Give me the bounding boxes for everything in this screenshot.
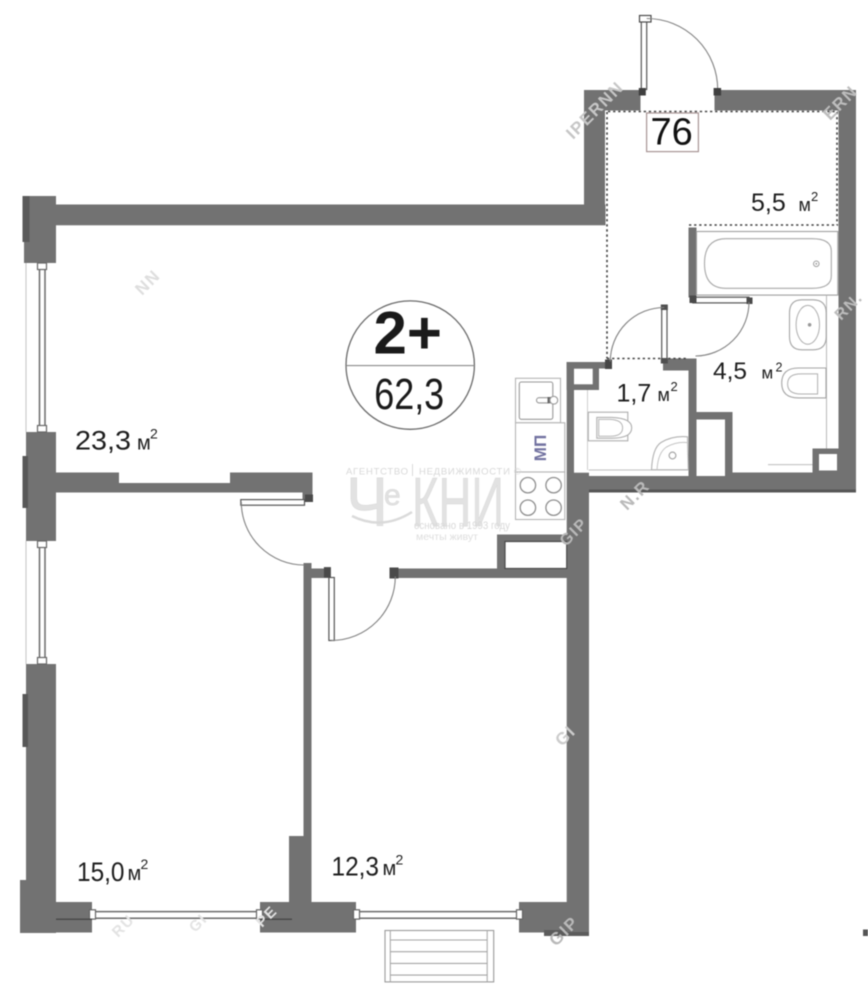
svg-text:2: 2 [150,426,158,442]
svg-text:15,0: 15,0 [77,857,125,887]
svg-text:4,5: 4,5 [713,358,747,385]
svg-text:м: м [128,863,142,885]
svg-text:2: 2 [671,379,678,394]
svg-text:е: е [384,479,401,512]
svg-text:2: 2 [776,361,783,375]
svg-text:2: 2 [396,852,404,868]
svg-text:23,3: 23,3 [75,426,131,456]
svg-text:5,5: 5,5 [751,189,786,217]
svg-text:2: 2 [811,189,818,204]
svg-text:м: м [799,195,811,215]
svg-text:м: м [383,858,397,880]
svg-text:м: м [658,385,670,405]
svg-text:мечты живут: мечты живут [416,531,478,543]
svg-text:м: м [762,364,774,383]
svg-text:12,3: 12,3 [332,852,380,882]
svg-text:Ч: Ч [346,463,388,541]
svg-text:м: м [137,433,151,455]
svg-text:76: 76 [651,112,693,154]
svg-text:2: 2 [141,856,149,872]
svg-text:62,3: 62,3 [374,370,444,419]
svg-text:1,7: 1,7 [617,380,652,408]
svg-text:МП: МП [531,435,550,461]
svg-text:2+: 2+ [374,300,442,367]
